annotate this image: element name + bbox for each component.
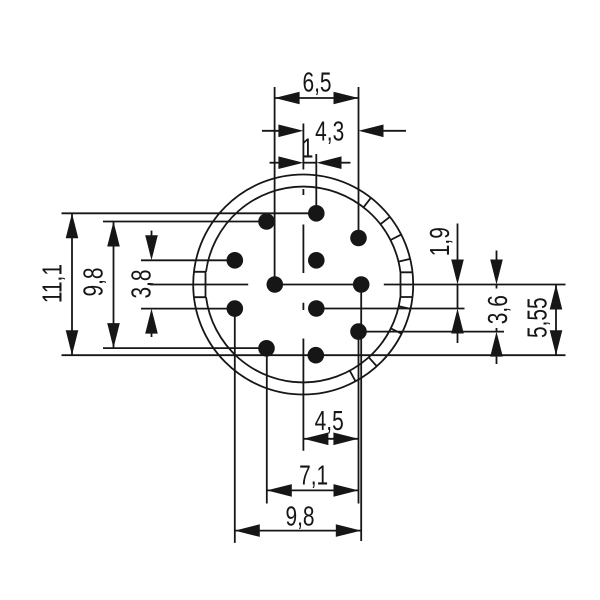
svg-text:3,6: 3,6 — [484, 295, 514, 324]
svg-text:9,8: 9,8 — [285, 502, 314, 532]
svg-text:7,1: 7,1 — [299, 461, 328, 491]
svg-text:4,3: 4,3 — [315, 117, 344, 147]
svg-text:6,5: 6,5 — [302, 68, 331, 98]
svg-text:9,8: 9,8 — [79, 267, 109, 296]
svg-text:1,9: 1,9 — [425, 227, 455, 256]
svg-text:3,8: 3,8 — [127, 269, 157, 298]
svg-text:11,1: 11,1 — [38, 264, 68, 303]
svg-text:5,55: 5,55 — [523, 297, 553, 338]
svg-text:1: 1 — [302, 134, 314, 164]
svg-text:4,5: 4,5 — [315, 406, 344, 436]
